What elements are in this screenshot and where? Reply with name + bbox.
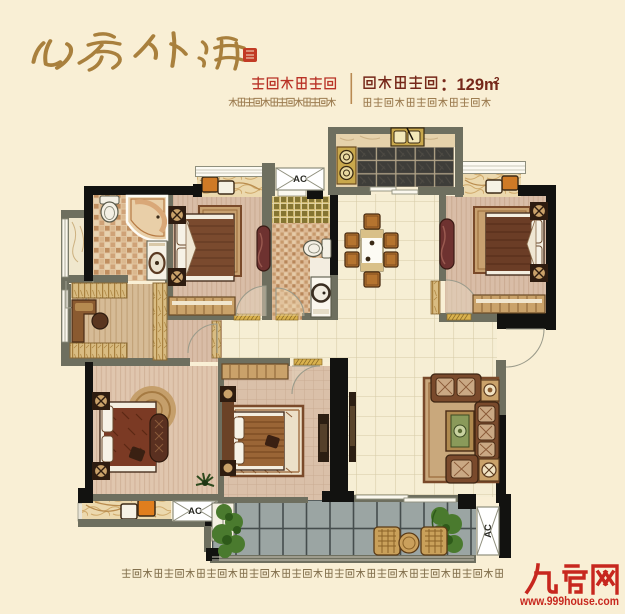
svg-text:www.999house.com: www.999house.com (519, 594, 619, 608)
svg-text:AC: AC (188, 506, 202, 517)
svg-text:2: 2 (494, 76, 500, 87)
svg-text:AC: AC (483, 524, 494, 538)
svg-text:AC: AC (293, 174, 307, 185)
svg-text:：129m: ：129m (440, 76, 499, 94)
